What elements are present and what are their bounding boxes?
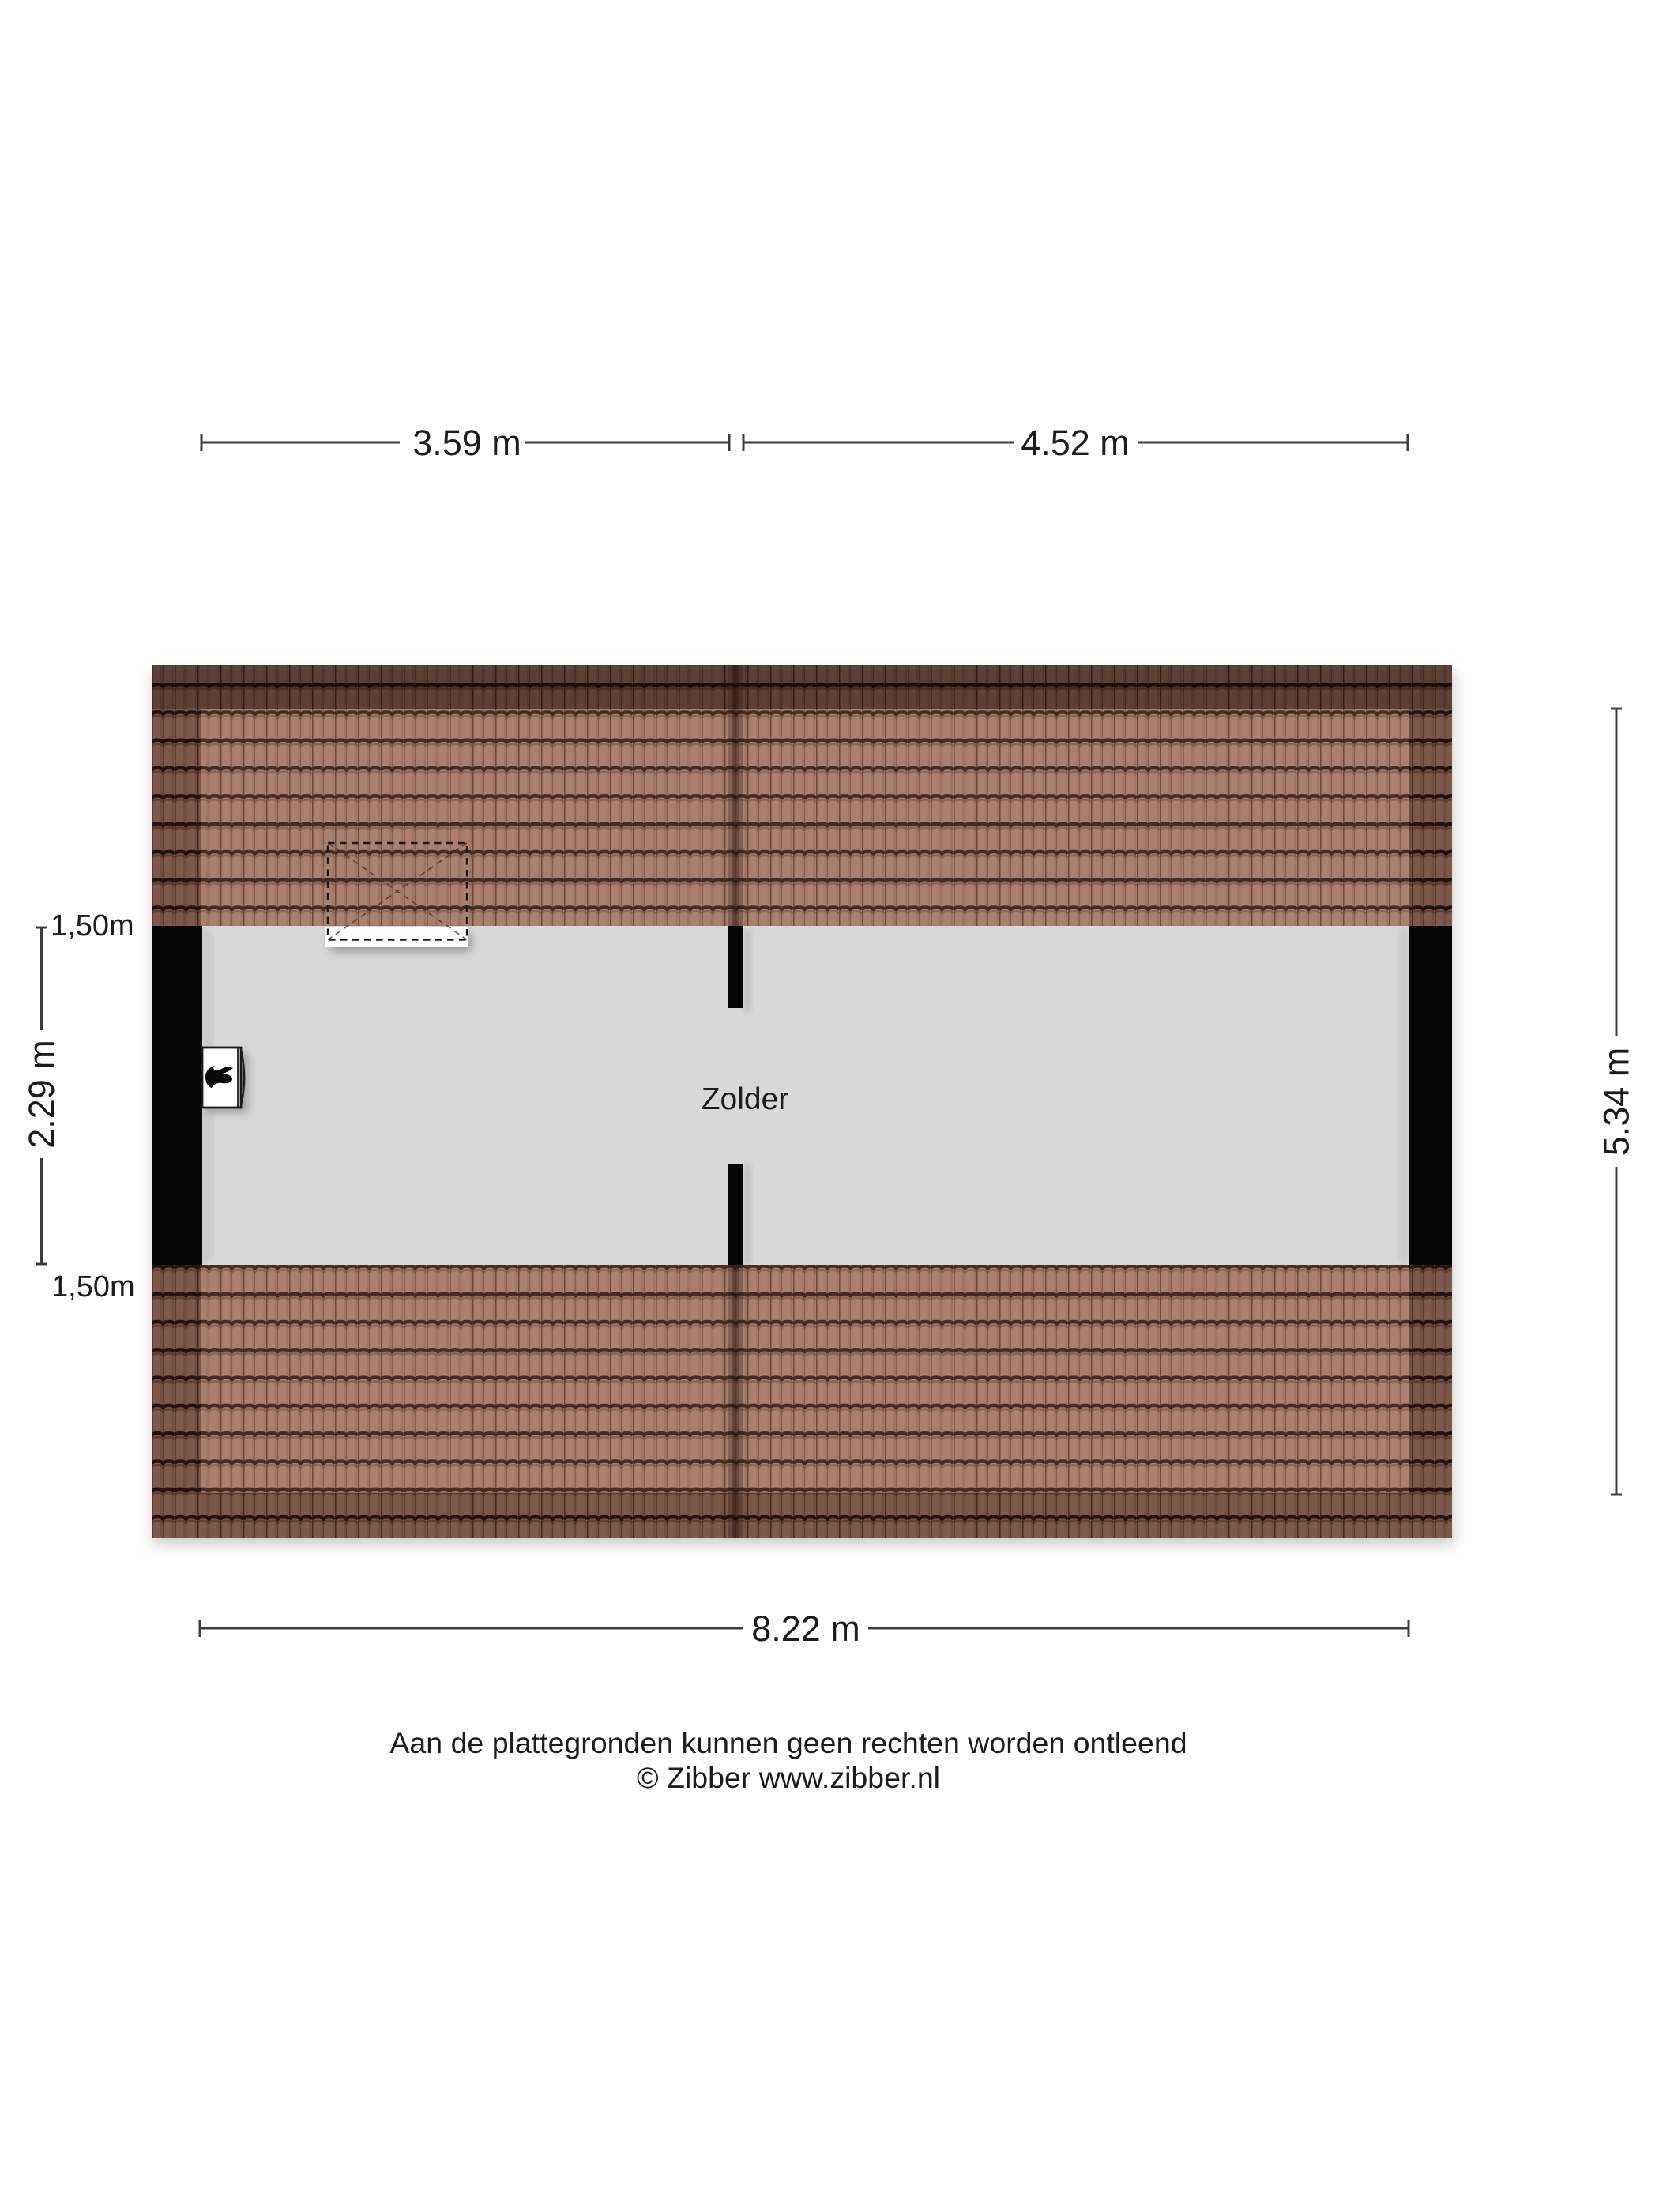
svg-text:4.52 m: 4.52 m: [1021, 423, 1130, 463]
svg-text:Aan de plattegronden kunnen ge: Aan de plattegronden kunnen geen rechten…: [389, 1726, 1187, 1759]
svg-text:5.34 m: 5.34 m: [1597, 1048, 1637, 1157]
svg-text:3.59 m: 3.59 m: [412, 423, 521, 463]
svg-text:1,50m: 1,50m: [51, 909, 134, 942]
svg-text:Zolder: Zolder: [702, 1082, 789, 1116]
svg-text:2.29 m: 2.29 m: [21, 1040, 62, 1149]
svg-text:© Zibber www.zibber.nl: © Zibber www.zibber.nl: [637, 1761, 940, 1794]
svg-text:8.22 m: 8.22 m: [751, 1608, 860, 1649]
svg-text:1,50m: 1,50m: [51, 1270, 135, 1303]
